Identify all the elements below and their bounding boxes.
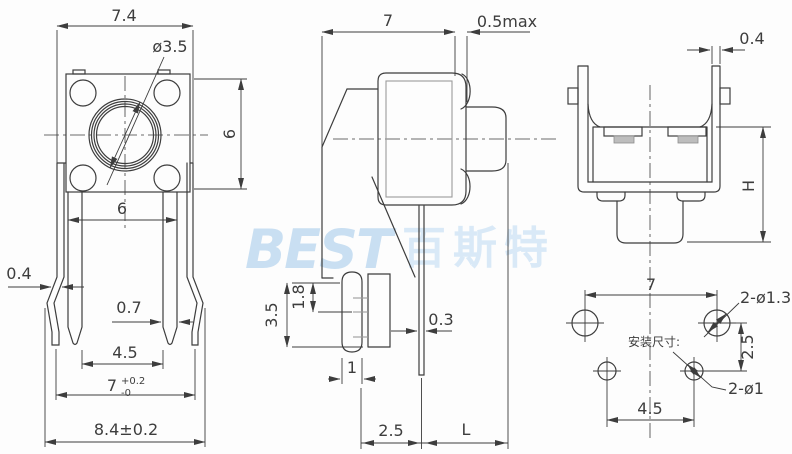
dim-lead-length: L [462, 420, 471, 439]
tact-switch-dimension-drawing: BEST 百斯特 7.4 ø3.5 [0, 0, 792, 454]
mounting-layout: 7 2-ø1.3 2.5 2-ø1 安装尺寸: 4.5 [566, 275, 791, 427]
dim-front-overall-bottom: 8.4±0.2 [94, 420, 158, 439]
front-view: 7.4 ø3.5 6 6 0.4 0.7 4.5 7 +0.2 -0 [6, 6, 247, 447]
dim-front-overall-top: 7.4 [111, 6, 136, 25]
dim-pin-outer-span: 6 [117, 199, 127, 218]
dim-pin-setback: 2.5 [378, 421, 403, 440]
dim-top-hole-span: 7 [646, 275, 656, 294]
dim-row-spacing: 2.5 [738, 334, 757, 359]
dim-leg-span: 7 [107, 376, 117, 395]
watermark-latin: BEST [245, 218, 397, 281]
dim-front-body-height: 6 [220, 129, 239, 139]
dim-pin-inner-span: 4.5 [112, 343, 137, 362]
label-top-holes: 2-ø1.3 [740, 288, 791, 307]
dim-leg-span-tol-dn: -0 [121, 388, 131, 399]
dim-bent-leg-width: 0.4 [6, 264, 31, 283]
dim-pin-width: 0.7 [116, 298, 141, 317]
dim-knob-diameter: ø3.5 [152, 37, 187, 56]
dim-peg-width: 1 [347, 358, 357, 377]
dim-bottom-hole-span: 4.5 [637, 399, 662, 418]
dim-wall-thickness: 0.4 [739, 29, 764, 48]
dim-slot-height: 1.8 [289, 284, 308, 309]
dim-gap-max: 0.5max [477, 12, 537, 31]
dim-base-height: 3.5 [262, 302, 281, 327]
label-bottom-holes: 2-ø1 [728, 379, 764, 398]
watermark: BEST 百斯特 [245, 218, 555, 281]
dim-body-depth: 7 [383, 11, 393, 30]
label-mounting-dimensions: 安装尺寸: [628, 334, 680, 349]
dim-leg-span-tol-up: +0.2 [121, 376, 145, 387]
dim-pin-thickness: 0.3 [428, 310, 453, 329]
technical-drawing-page: BEST 百斯特 7.4 ø3.5 [0, 0, 792, 454]
dim-height-h: H [739, 180, 758, 192]
watermark-cjk: 百斯特 [402, 223, 555, 274]
